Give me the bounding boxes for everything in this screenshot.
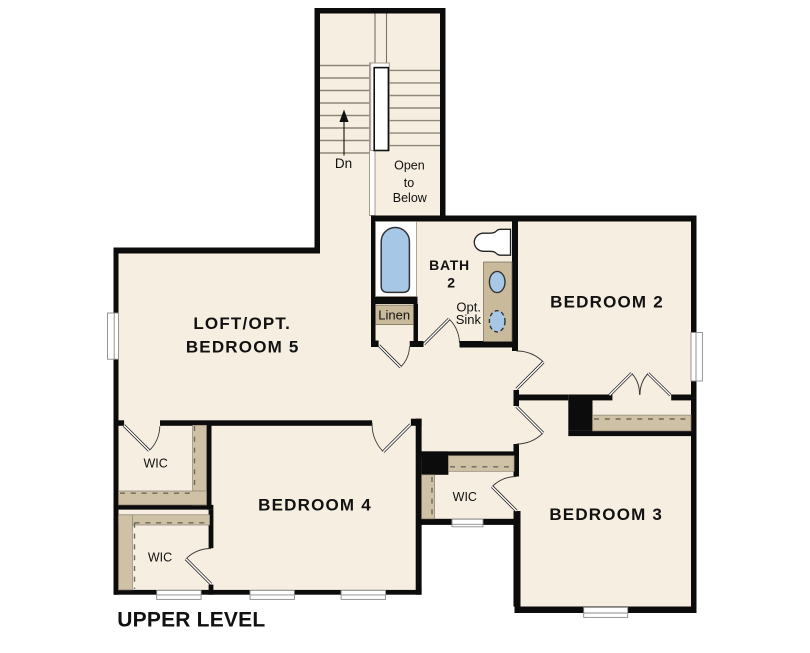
svg-text:BEDROOM 3: BEDROOM 3 xyxy=(549,505,663,524)
svg-text:WIC: WIC xyxy=(453,490,477,504)
svg-text:BEDROOM 4: BEDROOM 4 xyxy=(258,496,372,515)
svg-text:BEDROOM 2: BEDROOM 2 xyxy=(550,293,664,312)
svg-text:BEDROOM 5: BEDROOM 5 xyxy=(186,337,300,356)
svg-text:2: 2 xyxy=(447,274,456,290)
svg-text:LOFT/OPT.: LOFT/OPT. xyxy=(193,314,291,333)
svg-text:BATH: BATH xyxy=(429,257,470,273)
svg-text:to: to xyxy=(404,176,414,190)
svg-text:WIC: WIC xyxy=(143,457,167,471)
svg-text:Dn: Dn xyxy=(335,156,352,171)
svg-text:UPPER LEVEL: UPPER LEVEL xyxy=(117,609,265,632)
svg-text:Sink: Sink xyxy=(456,312,482,327)
svg-text:Open: Open xyxy=(394,158,425,172)
svg-text:WIC: WIC xyxy=(148,551,172,565)
svg-text:Linen: Linen xyxy=(378,308,410,323)
svg-text:Below: Below xyxy=(393,191,428,205)
